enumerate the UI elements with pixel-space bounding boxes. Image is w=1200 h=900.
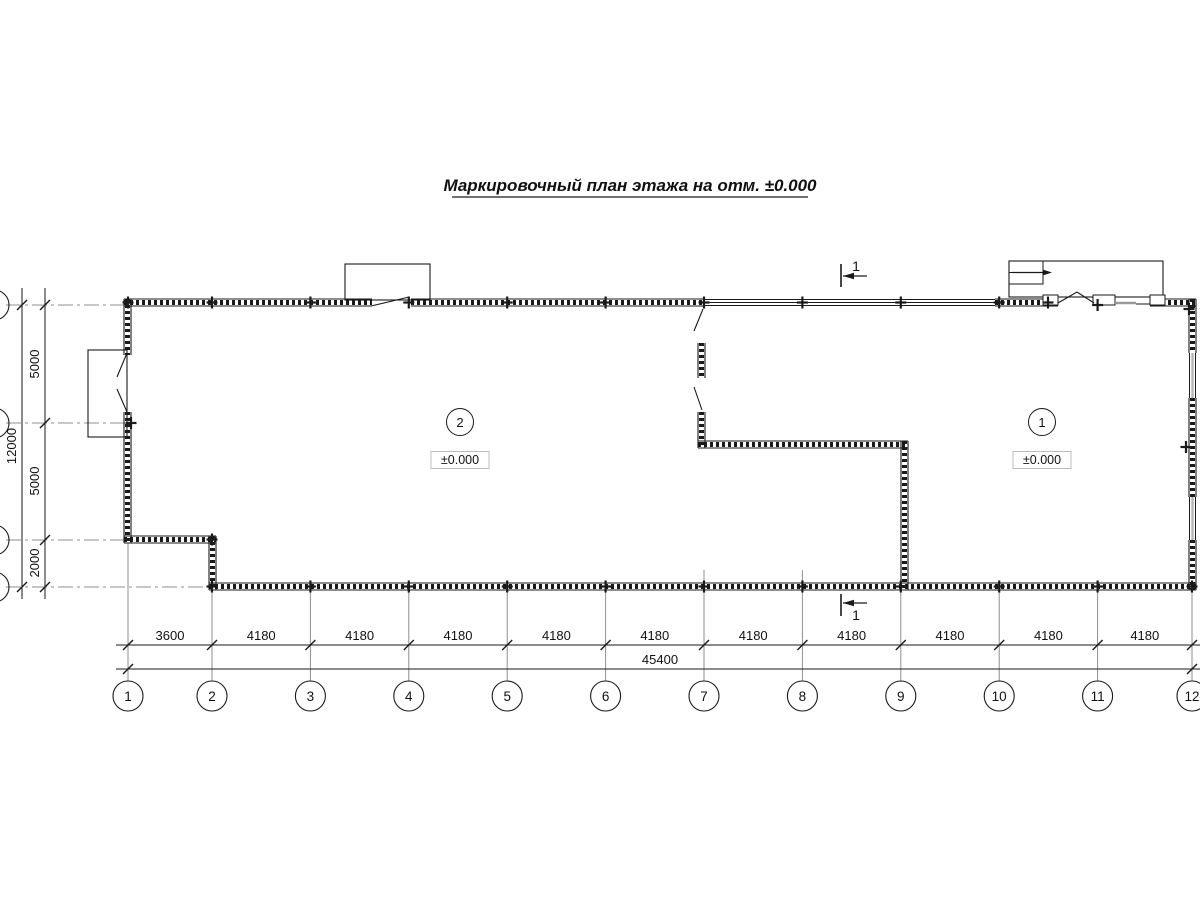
column-mark-icon <box>305 297 316 309</box>
section-number: 1 <box>852 258 860 274</box>
axis-number: 5 <box>503 689 511 704</box>
wall-segment <box>698 441 908 448</box>
axis-number: 12 <box>1184 689 1199 704</box>
door-pier <box>1093 295 1115 305</box>
axis-number: 9 <box>897 689 905 704</box>
column-mark-icon <box>1092 581 1103 593</box>
dimension-label: 4180 <box>936 628 965 643</box>
axis-number: 11 <box>1091 689 1105 704</box>
dimension-label: 4180 <box>1130 628 1159 643</box>
column-mark-icon <box>502 581 513 593</box>
axis-number: 6 <box>602 689 610 704</box>
dimension-label: 4180 <box>1034 628 1063 643</box>
column-mark-icon <box>207 297 218 309</box>
wall-segment <box>124 299 372 306</box>
axis-number: 7 <box>700 689 708 704</box>
door-leaf <box>694 309 703 331</box>
column-mark-icon <box>1181 441 1192 453</box>
room-marker-2: 2 ±0.000 <box>431 409 489 469</box>
column-mark-icon <box>403 581 414 593</box>
room-marker-1: 1 ±0.000 <box>1013 409 1071 469</box>
axis-number: 2 <box>208 689 216 704</box>
dimension-label: 4180 <box>837 628 866 643</box>
column-mark-icon <box>502 297 513 309</box>
door-leaf <box>117 353 127 377</box>
column-mark-icon <box>797 581 808 593</box>
left-dimension-label-1: 5000 <box>27 350 42 379</box>
room-number: 1 <box>1038 415 1045 430</box>
wall-segment <box>411 299 705 306</box>
drawing-sheet: Маркировочный план этажа на отм. ±0.000 … <box>0 0 1200 900</box>
elevation-value: ±0.000 <box>441 453 479 467</box>
axis-number: 8 <box>799 689 807 704</box>
elevation-value: ±0.000 <box>1023 453 1061 467</box>
dimension-label: 4180 <box>542 628 571 643</box>
room-number: 2 <box>456 415 463 430</box>
column-mark-icon <box>895 297 906 309</box>
wall-segment <box>698 343 705 378</box>
column-mark-icon <box>797 297 808 309</box>
wall-segment <box>124 536 216 543</box>
drawing-title-group: Маркировочный план этажа на отм. ±0.000 <box>443 176 817 197</box>
door-leaf <box>117 389 127 412</box>
left-dimension-label-3: 2000 <box>27 549 42 578</box>
column-mark-icon <box>699 581 710 593</box>
drawing-title: Маркировочный план этажа на отм. ±0.000 <box>443 176 817 195</box>
column-mark-icon <box>994 581 1005 593</box>
wall-segment <box>901 441 908 590</box>
section-mark-top: 1 <box>841 258 867 287</box>
column-mark-icon <box>994 297 1005 309</box>
section-arrowhead-icon <box>843 600 854 607</box>
axis-number: 4 <box>405 689 413 704</box>
dimension-label: 4180 <box>444 628 473 643</box>
section-number: 1 <box>852 607 860 623</box>
total-dimension-label: 45400 <box>642 652 678 667</box>
axis-number: 3 <box>307 689 315 704</box>
axis-number: 10 <box>992 689 1007 704</box>
left-dimension-label-2: 5000 <box>27 467 42 496</box>
dimension-label: 4180 <box>739 628 768 643</box>
left-total-dimension-label: 12000 <box>4 428 19 464</box>
axis-number: 1 <box>124 689 132 704</box>
dimension-label: 4180 <box>640 628 669 643</box>
floor-plan-drawing: Маркировочный план этажа на отм. ±0.000 … <box>0 0 1200 900</box>
dimension-label: 3600 <box>156 628 185 643</box>
dimension-label: 4180 <box>247 628 276 643</box>
canopy-outline <box>1009 261 1163 297</box>
door-leaf <box>694 387 702 410</box>
column-mark-icon <box>600 297 611 309</box>
door-pier <box>1150 295 1165 305</box>
ramp-arrowhead-icon <box>1043 270 1052 276</box>
column-mark-icon <box>699 297 710 309</box>
column-mark-icon <box>895 581 906 593</box>
section-mark-bottom: 1 <box>841 594 867 623</box>
column-mark-icon <box>600 581 611 593</box>
column-mark-icon <box>305 581 316 593</box>
canopy-outline <box>345 264 430 300</box>
dimension-label: 4180 <box>345 628 374 643</box>
porch-outline <box>88 350 127 437</box>
